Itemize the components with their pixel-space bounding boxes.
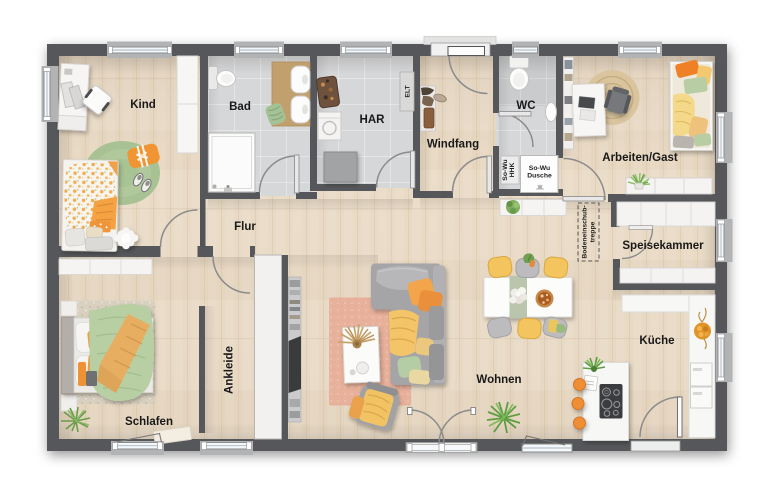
svg-text:Schlafen: Schlafen [125, 416, 173, 428]
svg-text:ELT: ELT [405, 84, 412, 97]
svg-text:So-Wu: So-Wu [529, 165, 550, 172]
svg-text:Flur: Flur [234, 221, 256, 233]
svg-text:WC: WC [516, 100, 535, 112]
svg-text:So-Wu: So-Wu [502, 159, 509, 180]
svg-text:Windfang: Windfang [427, 139, 479, 151]
svg-text:Kind: Kind [130, 99, 156, 111]
svg-text:Speisekammer: Speisekammer [622, 240, 704, 252]
svg-text:Wohnen: Wohnen [476, 374, 521, 386]
svg-text:Bodeneinschub-: Bodeneinschub- [582, 205, 589, 258]
svg-text:Arbeiten/Gast: Arbeiten/Gast [602, 152, 678, 164]
svg-text:treppe: treppe [590, 221, 597, 242]
svg-text:Dusche: Dusche [527, 173, 552, 180]
svg-text:Küche: Küche [639, 335, 674, 347]
svg-text:Ankleide: Ankleide [224, 346, 236, 394]
svg-text:HAR: HAR [360, 114, 386, 126]
svg-text:HHK: HHK [509, 163, 516, 178]
svg-text:Bad: Bad [229, 101, 251, 113]
